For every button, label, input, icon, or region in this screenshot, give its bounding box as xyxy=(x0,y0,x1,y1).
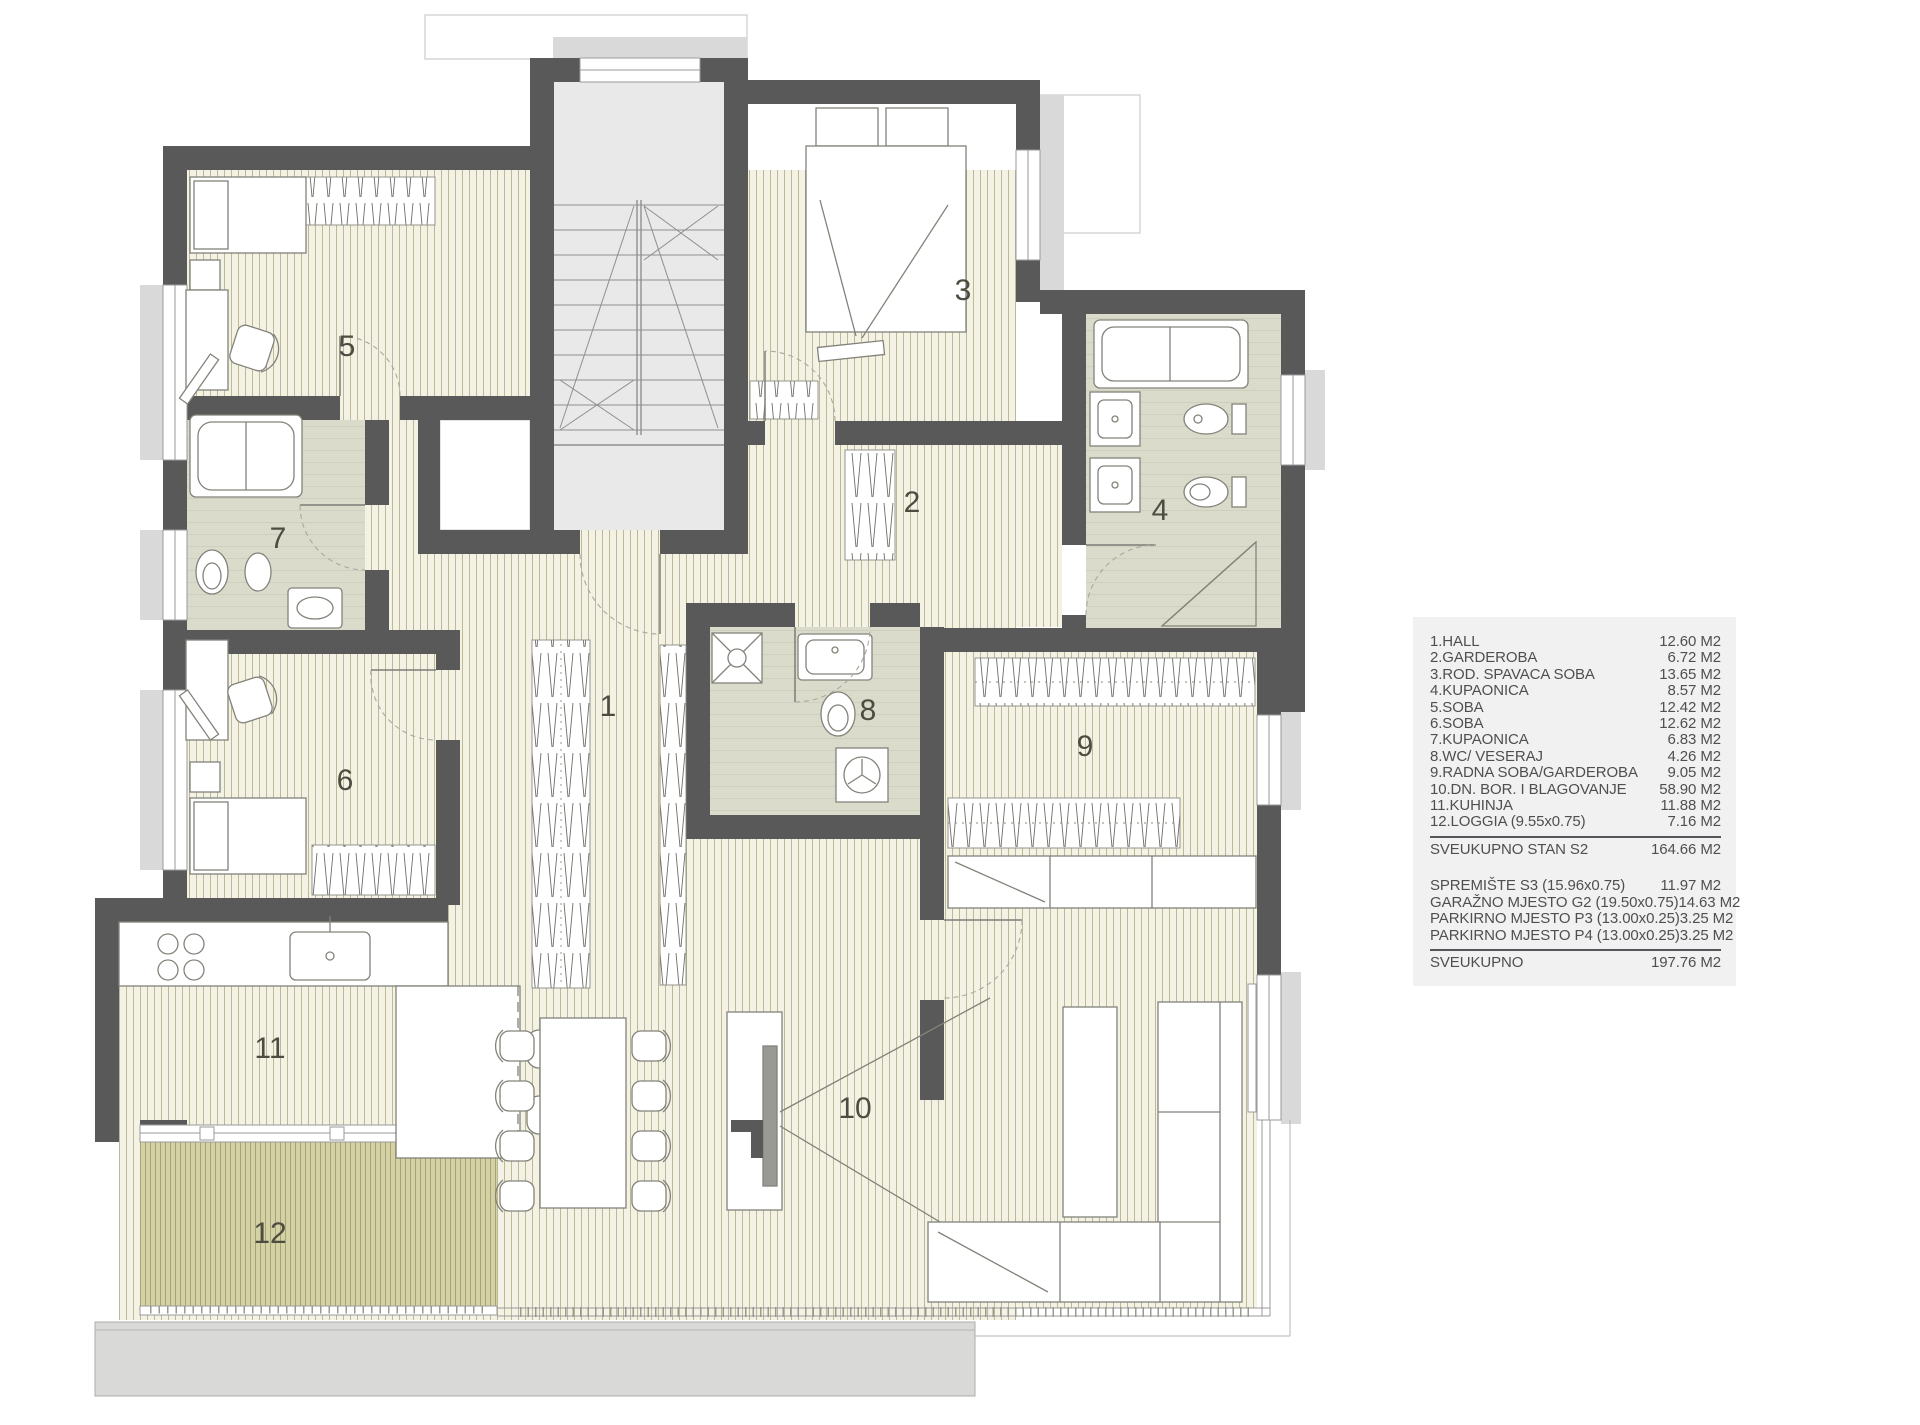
legend-area: 11.97 M2 xyxy=(1660,878,1721,894)
legend-area: 58.90 M2 xyxy=(1659,782,1721,798)
legend-label: 8.WC/ VESERAJ xyxy=(1430,749,1543,765)
legend-row: 6.SOBA12.62 M2 xyxy=(1430,716,1721,732)
legend-label: 7.KUPAONICA xyxy=(1430,732,1529,748)
legend-area: 7.16 M2 xyxy=(1668,814,1722,830)
legend-row: 1.HALL12.60 M2 xyxy=(1430,634,1721,650)
legend-area: 197.76 M2 xyxy=(1651,955,1721,971)
room-label-garderoba: 2 xyxy=(904,486,921,519)
legend-area: 4.26 M2 xyxy=(1668,749,1722,765)
legend-area: 9.05 M2 xyxy=(1668,765,1722,781)
lounge-bench xyxy=(1063,1007,1117,1217)
window-left-2 xyxy=(163,530,187,620)
sill-room3 xyxy=(1040,95,1064,291)
room-label-bath7: 7 xyxy=(270,522,287,555)
legend-label: SVEUKUPNO STAN S2 xyxy=(1430,842,1588,858)
window-left-1 xyxy=(163,285,187,460)
legend-area: 12.42 M2 xyxy=(1659,700,1721,716)
room9-furniture xyxy=(948,856,1256,908)
headboard-cabinet xyxy=(886,108,948,146)
room-label-room5: 5 xyxy=(339,330,356,363)
room-label-loggia12: 12 xyxy=(253,1217,286,1250)
legend-label: 10.DN. BOR. I BLAGOVANJE xyxy=(1430,782,1627,798)
toilet xyxy=(196,550,228,594)
sill-left-1 xyxy=(140,285,163,460)
legend-row: 10.DN. BOR. I BLAGOVANJE58.90 M2 xyxy=(1430,782,1721,798)
legend-label: 4.KUPAONICA xyxy=(1430,683,1529,699)
legend-label: 2.GARDEROBA xyxy=(1430,650,1537,666)
legend-total: SVEUKUPNO197.76 M2 xyxy=(1430,949,1721,971)
legend-row: 11.KUHINJA11.88 M2 xyxy=(1430,798,1721,814)
wardrobe-hall-b xyxy=(660,645,686,985)
legend-row: 7.KUPAONICA6.83 M2 xyxy=(1430,732,1721,748)
legend-area: 11.88 M2 xyxy=(1660,798,1721,814)
room-label-bath4: 4 xyxy=(1152,494,1169,527)
tv-screen xyxy=(763,1046,777,1186)
legend-area: 6.72 M2 xyxy=(1668,650,1722,666)
room-label-room6: 6 xyxy=(337,764,354,797)
legend-label: PARKIRNO MJESTO P4 (13.00x0.25) xyxy=(1430,928,1680,944)
floor-plan-page: 1 2 3 4 5 6 7 8 9 10 11 12 1.HALL12.60 M… xyxy=(0,0,1920,1425)
wardrobe-room2 xyxy=(845,450,895,560)
legend-row: PARKIRNO MJESTO P3 (13.00x0.25)3.25 M2 xyxy=(1430,911,1721,927)
legend-area: 3.25 M2 xyxy=(1680,911,1734,927)
legend-area: 12.62 M2 xyxy=(1659,716,1721,732)
sink xyxy=(288,588,342,628)
terrace xyxy=(95,1322,975,1396)
window-room9 xyxy=(1257,715,1281,805)
loggia-south-rail xyxy=(140,1306,497,1315)
legend-label: PARKIRNO MJESTO P3 (13.00x0.25) xyxy=(1430,911,1680,927)
sideboard xyxy=(948,856,1256,908)
legend-area: 13.65 M2 xyxy=(1659,667,1721,683)
closet-floor xyxy=(440,420,530,530)
room-label-living10: 10 xyxy=(838,1092,871,1125)
legend-row: PARKIRNO MJESTO P4 (13.00x0.25)3.25 M2 xyxy=(1430,928,1721,944)
room-label-kitchen11: 11 xyxy=(254,1032,285,1065)
room-label-bedroom3: 3 xyxy=(955,274,972,307)
room-label-wc8: 8 xyxy=(860,694,877,727)
sofa-right xyxy=(1158,1002,1242,1302)
legend-row: 3.ROD. SPAVACA SOBA13.65 M2 xyxy=(1430,667,1721,683)
legend-label: GARAŽNO MJESTO G2 (19.50x0.75) xyxy=(1430,895,1678,911)
legend-area: 12.60 M2 xyxy=(1659,634,1721,650)
wardrobe-room5 xyxy=(300,177,435,225)
sill-living xyxy=(1281,972,1301,1124)
toilet xyxy=(821,692,855,736)
window-left-3 xyxy=(163,690,187,870)
legend-row: GARAŽNO MJESTO G2 (19.50x0.75)14.63 M2 xyxy=(1430,895,1721,911)
legend-row: 4.KUPAONICA8.57 M2 xyxy=(1430,683,1721,699)
headboard-cabinet xyxy=(816,108,878,146)
area-legend: 1.HALL12.60 M2 2.GARDEROBA6.72 M2 3.ROD.… xyxy=(1413,617,1736,986)
bathtub xyxy=(1094,320,1248,388)
bidet xyxy=(1184,404,1228,434)
kitchen-sink xyxy=(290,932,370,980)
legend-label: 9.RADNA SOBA/GARDEROBA xyxy=(1430,765,1638,781)
legend-label: SVEUKUPNO xyxy=(1430,955,1523,971)
legend-row: 12.LOGGIA (9.55x0.75)7.16 M2 xyxy=(1430,814,1721,830)
loggia-floor xyxy=(140,1142,497,1310)
wardrobe-room3 xyxy=(750,381,818,419)
legend-label: 5.SOBA xyxy=(1430,700,1484,716)
bed-pillow xyxy=(194,802,228,870)
legend-row: 5.SOBA12.42 M2 xyxy=(1430,700,1721,716)
sill-left-2 xyxy=(140,530,163,620)
legend-subtotal: SVEUKUPNO STAN S2164.66 M2 xyxy=(1430,836,1721,858)
legend-row: 9.RADNA SOBA/GARDEROBA9.05 M2 xyxy=(1430,765,1721,781)
legend-label: 1.HALL xyxy=(1430,634,1479,650)
legend-label: 3.ROD. SPAVACA SOBA xyxy=(1430,667,1595,683)
sill-room9 xyxy=(1281,710,1301,810)
sill-stair-window xyxy=(553,37,747,58)
legend-area: 8.57 M2 xyxy=(1668,683,1722,699)
legend-spacer xyxy=(1430,858,1721,878)
bidet xyxy=(245,553,271,591)
dining-table xyxy=(540,1018,626,1208)
stairwell-floor xyxy=(554,82,724,530)
room-label-hall: 1 xyxy=(600,690,617,723)
bed-pillow xyxy=(194,181,228,249)
legend-area: 164.66 M2 xyxy=(1651,842,1721,858)
window-living xyxy=(1248,975,1281,1120)
legend-area: 3.25 M2 xyxy=(1680,928,1734,944)
window-stair xyxy=(580,58,700,82)
legend-area: 6.83 M2 xyxy=(1668,732,1722,748)
legend-label: 11.KUHINJA xyxy=(1430,798,1513,814)
legend-area: 14.63 M2 xyxy=(1678,895,1740,911)
sill-left-3 xyxy=(140,690,163,870)
legend-row: 2.GARDEROBA6.72 M2 xyxy=(1430,650,1721,666)
window-room4 xyxy=(1281,375,1305,465)
legend-label: SPREMIŠTE S3 (15.96x0.75) xyxy=(1430,878,1625,894)
legend-row: SPREMIŠTE S3 (15.96x0.75)11.97 M2 xyxy=(1430,878,1721,894)
sill-room4 xyxy=(1305,370,1325,470)
legend-label: 6.SOBA xyxy=(1430,716,1484,732)
legend-row: 8.WC/ VESERAJ4.26 M2 xyxy=(1430,749,1721,765)
wood-floor-corridor2 xyxy=(1016,445,1062,627)
wardrobe-room6 xyxy=(312,845,435,895)
window-room3 xyxy=(1016,150,1040,260)
room-label-study9: 9 xyxy=(1077,730,1094,763)
legend-label: 12.LOGGIA (9.55x0.75) xyxy=(1430,814,1586,830)
